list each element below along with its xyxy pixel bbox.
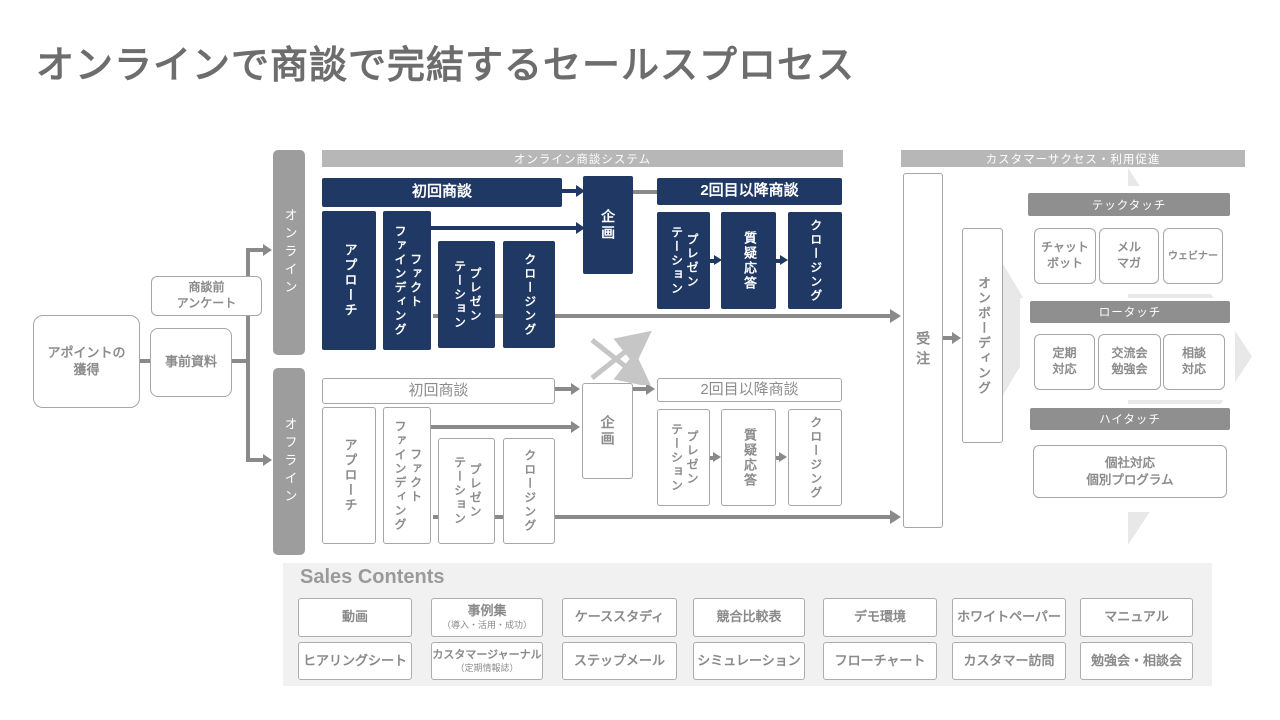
individual-program-box: 個社対応 個別プログラム: [1033, 445, 1227, 498]
offline-step-factfinding: ファクト ファインディング: [383, 407, 431, 544]
arrow-offline-fact-to-planning: [431, 425, 571, 429]
online-second-meeting-header: 2回目以降商談: [657, 178, 842, 205]
online-system-bar: オンライン商談システム: [322, 150, 843, 167]
sales-item-step-mail-label: ステップメール: [574, 654, 665, 669]
sales-item-step-mail: ステップメール: [562, 642, 677, 680]
sales-item-flowchart: フローチャート: [823, 642, 937, 680]
sales-item-customer-visit: カスタマー訪問: [952, 642, 1066, 680]
low-touch-bar: ロータッチ: [1030, 301, 1230, 323]
sales-item-case-collection: 事例集 （導入・活用・成功）: [431, 598, 543, 637]
sales-item-case-study: ケーススタディ: [562, 598, 677, 637]
sales-item-customer-journal-label: カスタマージャーナル: [432, 649, 541, 662]
lane-offline: オフライン: [273, 368, 305, 555]
arrowhead-online: [263, 244, 272, 256]
online-step2-closing-label: クロージング: [807, 219, 823, 303]
sales-item-manual: マニュアル: [1080, 598, 1193, 637]
arrow-offline-first-to-planning: [555, 387, 572, 391]
periodic-support-box: 定期 対応: [1034, 334, 1095, 390]
offline-step2-closing-label: クロージング: [807, 416, 823, 500]
online-step-closing: クロージング: [503, 241, 555, 348]
arrowhead-offline-qa-closing: [779, 452, 787, 462]
arrowhead-order-to-onboarding: [952, 332, 961, 344]
consult-support-box: 相談 対応: [1163, 334, 1225, 390]
sales-item-hearing-sheet-label: ヒアリングシート: [303, 654, 407, 669]
customer-success-bar: カスタマーサクセス・利用促進: [901, 150, 1245, 167]
online-step-approach: アプローチ: [322, 211, 376, 350]
offline-step2-qa: 質疑応答: [721, 409, 776, 506]
online-step-factfinding: ファクト ファインディング: [383, 211, 431, 350]
sales-item-competitor-comparison: 競合比較表: [693, 598, 805, 637]
order-box: 受注: [903, 173, 943, 528]
arrowhead-online-to-order: [890, 309, 901, 323]
sales-item-video-label: 動画: [342, 610, 368, 625]
online-step2-presentation: プレゼン テーション: [657, 212, 710, 309]
webinar-box: ウェビナー: [1163, 228, 1223, 284]
arrowhead-offline-to-order: [890, 510, 901, 524]
line-online-to-order: [433, 314, 891, 318]
sales-item-demo-env: デモ環境: [823, 598, 937, 637]
slide: オンラインで商談で完結するセールスプロセス アポイントの 獲得 事前資料 商談前…: [0, 0, 1280, 720]
online-step-approach-label: アプローチ: [341, 243, 358, 318]
sales-item-study-consult: 勉強会・相談会: [1080, 642, 1193, 680]
sales-item-customer-visit-label: カスタマー訪問: [963, 654, 1054, 669]
lane-online-label: オンライン: [281, 208, 298, 298]
offline-first-meeting-header: 初回商談: [322, 378, 555, 404]
offline-step-factfinding-label: ファクト ファインディング: [391, 420, 422, 532]
sales-item-flowchart-label: フローチャート: [835, 654, 926, 669]
pre-meeting-survey-box: 商談前 アンケート: [151, 276, 262, 316]
arrowhead-offline-pres-qa: [713, 452, 721, 462]
offline-step-closing-label: クロージング: [521, 449, 537, 533]
online-step2-qa-label: 質疑応答: [740, 231, 757, 291]
offline-step2-presentation: プレゼン テーション: [657, 409, 710, 506]
offline-step-presentation-label: プレゼン テーション: [451, 456, 482, 526]
online-step-presentation: プレゼン テーション: [438, 241, 495, 348]
page-title: オンラインで商談で完結するセールスプロセス: [36, 34, 1136, 89]
offline-step2-closing: クロージング: [788, 409, 842, 506]
offline-step2-presentation-label: プレゼン テーション: [668, 423, 699, 493]
arrowhead-online-qa-closing: [780, 255, 788, 265]
online-step-closing-label: クロージング: [521, 253, 537, 337]
online-step2-qa: 質疑応答: [721, 212, 776, 309]
lane-online: オンライン: [273, 150, 305, 355]
online-first-meeting-header: 初回商談: [322, 178, 562, 207]
offline-step-approach: アプローチ: [322, 407, 376, 544]
sales-item-simulation-label: シミュレーション: [697, 654, 800, 669]
online-step2-closing: クロージング: [788, 212, 842, 309]
chatbot-box: チャット ボット: [1034, 228, 1096, 284]
lane-offline-label: オフライン: [281, 417, 298, 507]
connector-to-offline: [249, 458, 263, 462]
arrowhead-offline-fact-to-planning: [571, 421, 580, 433]
order-label: 受注: [914, 331, 932, 371]
online-planning-label: 企画: [599, 209, 617, 241]
arrowhead-offline-first-to-planning: [571, 383, 580, 395]
tech-touch-bar: テックタッチ: [1028, 193, 1230, 216]
offline-step-approach-label: アプローチ: [341, 438, 358, 513]
arrowhead-offline: [263, 454, 272, 466]
online-step-presentation-label: プレゼン テーション: [451, 260, 482, 330]
sales-item-simulation: シミュレーション: [693, 642, 805, 680]
mail-magazine-box: メル マガ: [1099, 228, 1159, 284]
offline-planning-label: 企画: [598, 415, 616, 447]
onboarding-label: オンボーディング: [974, 276, 991, 396]
offline-step-presentation: プレゼン テーション: [438, 438, 495, 544]
sales-item-customer-journal-sub: （定期情報誌）: [455, 663, 518, 673]
sales-item-case-collection-sub: （導入・活用・成功）: [442, 620, 532, 630]
high-touch-bar: ハイタッチ: [1030, 408, 1230, 430]
sales-item-customer-journal: カスタマージャーナル （定期情報誌）: [431, 642, 543, 680]
sales-item-study-consult-label: 勉強会・相談会: [1091, 654, 1182, 669]
online-planning-box: 企画: [583, 176, 633, 274]
sales-item-demo-env-label: デモ環境: [854, 610, 906, 625]
sales-item-competitor-comparison-label: 競合比較表: [716, 610, 781, 625]
arrow-offline-planning-to-second: [633, 387, 647, 391]
sales-item-case-collection-label: 事例集: [467, 604, 506, 619]
online-step2-presentation-label: プレゼン テーション: [668, 226, 699, 296]
offline-step2-qa-label: 質疑応答: [740, 428, 757, 488]
arrow-online-fact-to-planning: [431, 226, 577, 230]
line-offline-to-order: [433, 515, 891, 519]
sales-item-whitepaper-label: ホワイトペーパー: [957, 610, 1061, 625]
crossover-arrows: [585, 330, 655, 385]
pre-docs-box: 事前資料: [150, 328, 232, 397]
sales-item-case-study-label: ケーススタディ: [575, 610, 664, 625]
offline-planning-box: 企画: [582, 383, 633, 479]
meetup-study-box: 交流会 勉強会: [1098, 334, 1161, 390]
sales-item-manual-label: マニュアル: [1104, 610, 1169, 625]
sales-item-video: 動画: [298, 598, 412, 637]
sales-item-whitepaper: ホワイトペーパー: [952, 598, 1066, 637]
arrow-online-first-to-planning: [562, 189, 577, 193]
offline-second-meeting-header: 2回目以降商談: [657, 378, 842, 402]
sales-contents-title: Sales Contents: [300, 566, 444, 589]
sales-item-hearing-sheet: ヒアリングシート: [298, 642, 412, 680]
connector-to-online: [249, 248, 263, 252]
online-step-factfinding-label: ファクト ファインディング: [391, 225, 422, 337]
line-online-planning-to-second: [633, 190, 657, 194]
offline-step-closing: クロージング: [503, 438, 555, 544]
appointment-box: アポイントの 獲得: [33, 315, 140, 408]
connector-appoint-docs: [140, 359, 150, 363]
onboarding-box: オンボーディング: [962, 228, 1003, 443]
